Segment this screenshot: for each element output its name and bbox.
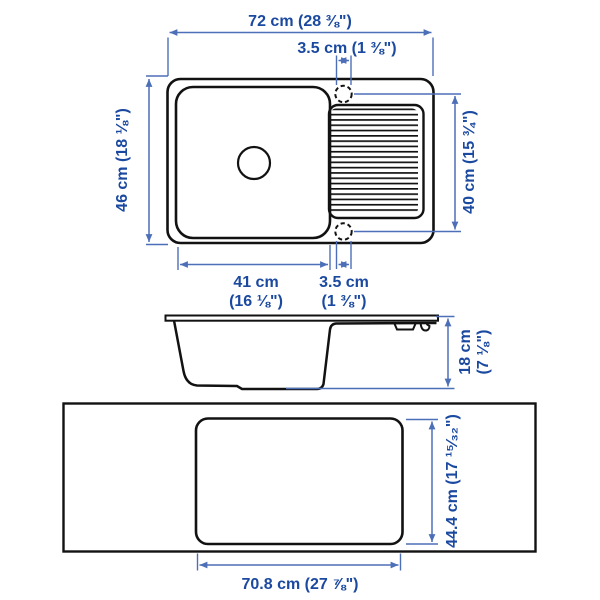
label-faucet-hole-bottom-line2: (1 ⅜") bbox=[322, 293, 367, 310]
product-dimension-diagram: 72 cm (28 ⅜") 3.5 cm (1 ⅜") 46 cm (18 ⅛"… bbox=[0, 0, 600, 600]
label-overall-width: 72 cm (28 ⅜") bbox=[248, 13, 352, 30]
label-faucet-hole-bottom-line1: 3.5 cm bbox=[319, 274, 369, 291]
label-cutout-width: 70.8 cm (27 ⅞") bbox=[242, 576, 359, 593]
label-height-line2: (7 ⅛") bbox=[475, 330, 492, 375]
sink-rim bbox=[166, 316, 439, 321]
label-bowl-width-line1: 41 cm bbox=[233, 274, 278, 291]
drainboard-ridges bbox=[330, 109, 418, 215]
label-height-line1: 18 cm bbox=[457, 329, 474, 374]
label-faucet-hole-top: 3.5 cm (1 ⅜") bbox=[297, 40, 396, 57]
label-overall-depth: 46 cm (18 ⅛") bbox=[114, 108, 131, 212]
background bbox=[0, 0, 600, 600]
label-right-span: 40 cm (15 ¾") bbox=[461, 110, 478, 214]
label-cutout-depth: 44.4 cm (17 ¹⁵⁄₃₂") bbox=[444, 414, 461, 548]
sink-dimension-drawing: 72 cm (28 ⅜") 3.5 cm (1 ⅜") 46 cm (18 ⅛"… bbox=[0, 0, 600, 600]
label-bowl-width-line2: (16 ⅛") bbox=[229, 293, 283, 310]
